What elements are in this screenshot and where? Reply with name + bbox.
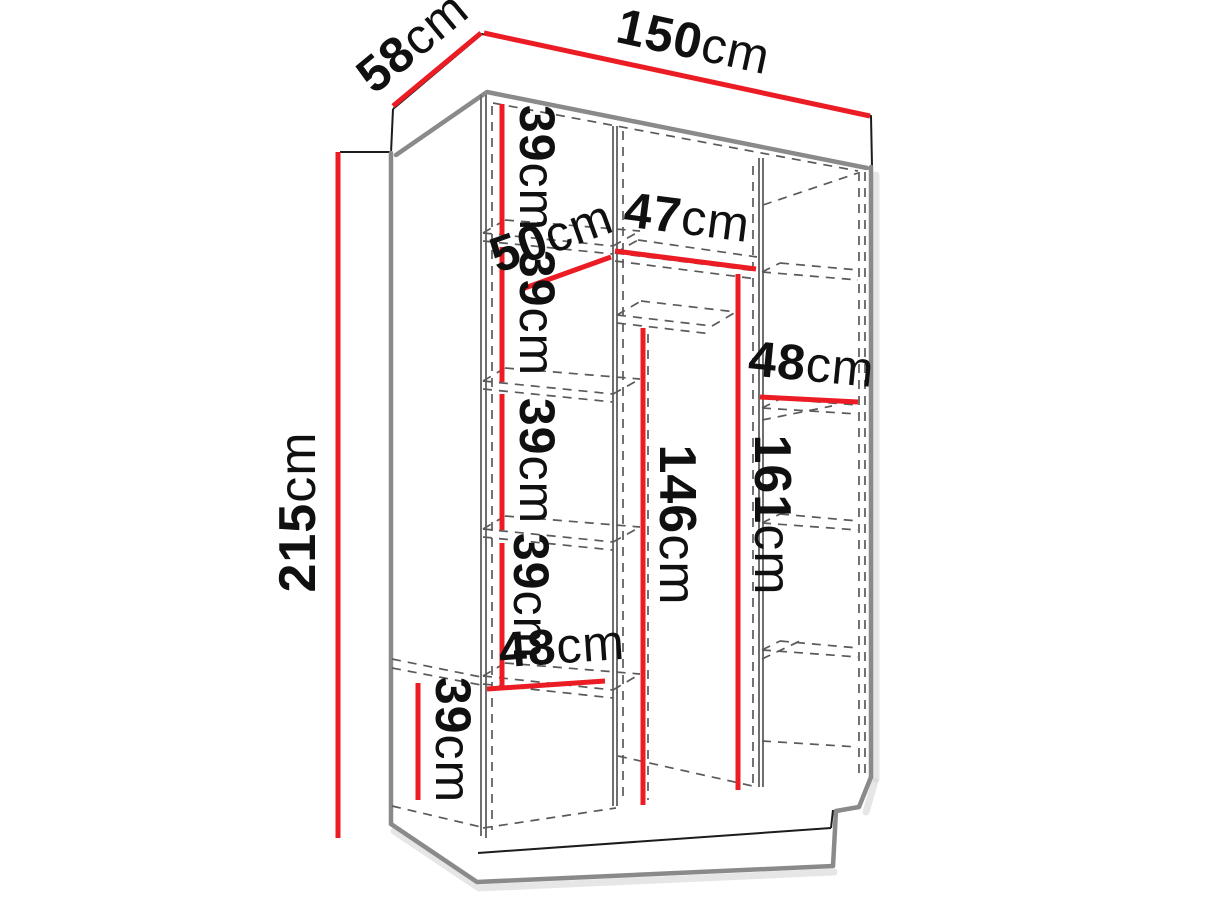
dim-label-left-width-bottom: 48cm [497, 614, 627, 679]
dim-line-right-width [760, 397, 858, 402]
wardrobe-dimension-diagram: 58cm 150cm 215cm 39cm 39cm 39cm 39cm 39c… [0, 0, 1214, 911]
dim-label-left-shelf-3: 39cm [509, 398, 565, 524]
dim-label-middle-inner-height: 146cm [648, 444, 706, 605]
dim-label-width-top: 150cm [612, 0, 775, 85]
dim-label-left-bottom-shelf: 39cm [425, 677, 481, 803]
dim-label-right-width: 48cm [746, 330, 877, 398]
dim-label-height-left: 215cm [269, 431, 327, 592]
wardrobe-diagram-svg: 58cm 150cm 215cm 39cm 39cm 39cm 39cm 39c… [0, 0, 1214, 911]
dim-label-middle-shelf-width: 47cm [621, 181, 753, 253]
dim-label-middle-full-height: 161cm [743, 434, 801, 595]
